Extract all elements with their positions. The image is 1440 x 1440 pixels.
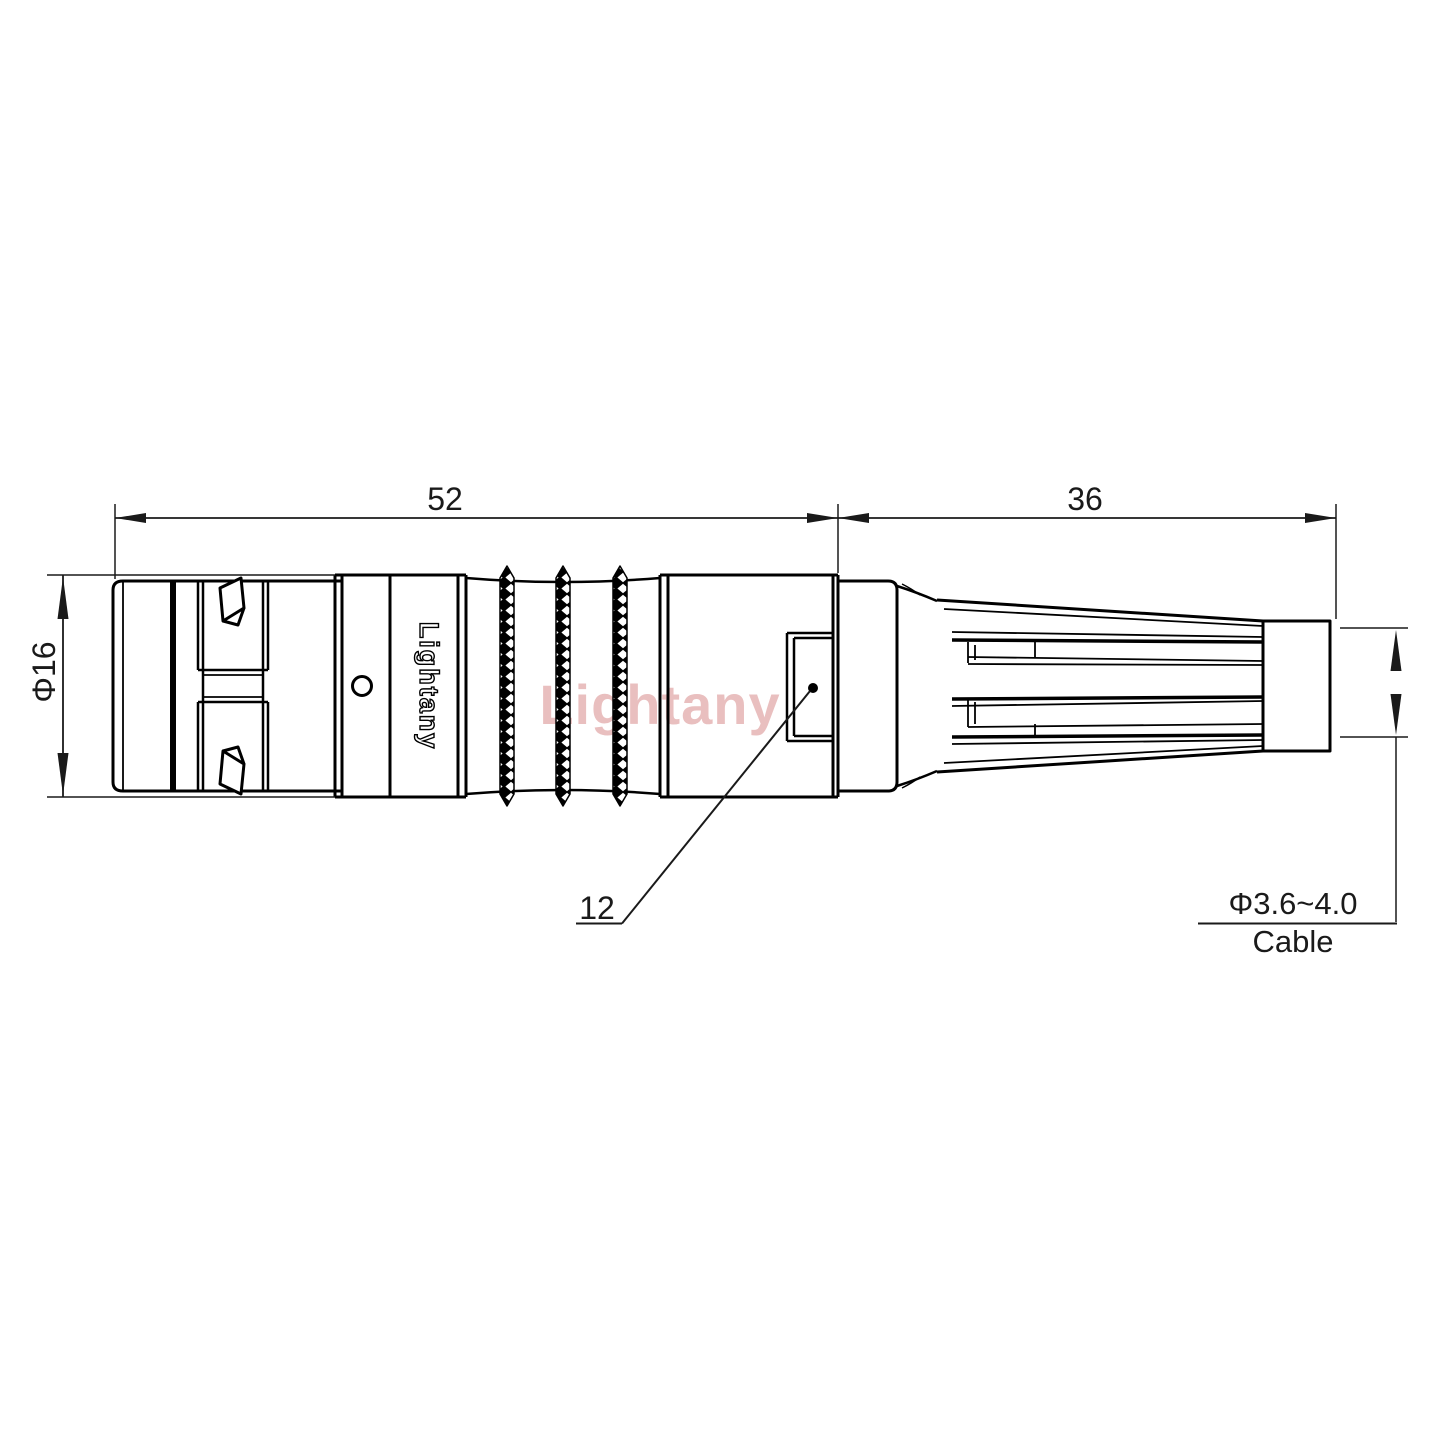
cable-word-label: Cable [1253, 924, 1334, 959]
shell-brand-text: Lightany [414, 622, 444, 751]
connector-dimension-drawing: Lightany [0, 0, 1440, 1440]
cable-ferrule [1263, 621, 1330, 751]
knurl-band-1 [500, 566, 514, 806]
cable-range-label: Φ3.6~4.0 [1228, 886, 1357, 921]
dim-diameter-label: Φ16 [26, 641, 62, 702]
technical-drawing-canvas: Lightany [0, 0, 1440, 1440]
front-groove [170, 582, 176, 790]
dim-52-label: 52 [427, 481, 463, 517]
knurl-band-2 [556, 566, 570, 806]
dim-36-label: 36 [1067, 481, 1103, 517]
leader-12-label: 12 [579, 890, 615, 926]
knurl-band-3 [613, 566, 627, 806]
